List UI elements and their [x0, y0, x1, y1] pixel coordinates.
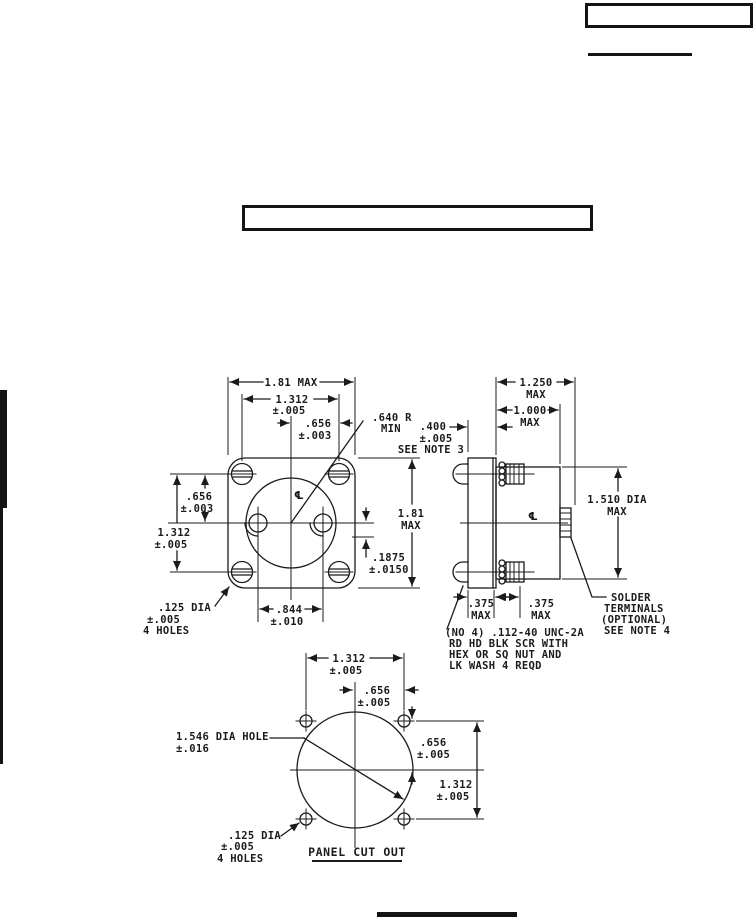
dim-half-spacing-h-tol: ±.003 [298, 430, 331, 442]
mount-hole-dia: .125 DIA [158, 602, 211, 614]
dim-width-max-label: 1.81 MAX [265, 377, 318, 389]
panel-half-spacing-v-tol: ±.005 [417, 749, 450, 761]
dim-half-spacing-h-value: .656 [305, 418, 332, 430]
dim-slot-spacing-tol: ±.010 [270, 616, 303, 628]
dim-body-depth-value: 1.000 [513, 405, 546, 417]
panel-mount-hole-note: .125 DIA ±.005 4 HOLES [217, 823, 299, 865]
panel-dim-hole-spacing-h: 1.312 ±.005 [308, 653, 402, 677]
dim-rear-protrusion-unit: MAX [531, 610, 551, 622]
screw-note-line4: LK WASH 4 REQD [449, 660, 542, 672]
cutout-dia-note: 1.546 DIA HOLE ±.016 [176, 731, 403, 799]
dim-rear-protrusion-value: .375 [528, 598, 555, 610]
panel-cutout-title-text: PANEL CUT OUT [308, 845, 406, 859]
side-view: ℄ 1.250 MAX [398, 377, 670, 672]
solder-note-line4: SEE NOTE 4 [604, 625, 670, 637]
screw-bottom-left [228, 562, 256, 583]
panel-mount-hole-tol: ±.005 [221, 841, 254, 853]
panel-hole-spacing-v-tol: ±.005 [436, 791, 469, 803]
mount-hole-note: .125 DIA ±.005 4 HOLES [143, 587, 229, 637]
dim-body-dia-value: 1.510 DIA [587, 494, 647, 506]
centerline-symbol: ℄ [294, 489, 304, 502]
panel-cutout-title: PANEL CUT OUT [308, 845, 406, 861]
screw-top-left [228, 464, 256, 485]
cutout-dia-tol: ±.016 [176, 743, 209, 755]
dim-half-spacing-v-tol: ±.003 [180, 503, 213, 515]
dim-hole-spacing-v-value: 1.312 [157, 527, 190, 539]
panel-half-spacing-h-tol: ±.005 [357, 697, 390, 709]
dim-hole-spacing-h-tol: ±.005 [272, 405, 305, 417]
panel-mount-hole-count: 4 HOLES [217, 853, 263, 865]
dim-offset-tol: ±.0150 [369, 564, 409, 576]
dim-offset-value: .1875 [372, 552, 405, 564]
panel-half-spacing-v-value: .656 [420, 737, 447, 749]
dim-rear-protrusion: .375 MAX [497, 597, 554, 622]
panel-hole-spacing-h-tol: ±.005 [329, 665, 362, 677]
dim-body-depth-unit: MAX [520, 417, 540, 429]
screw-hardware-note: (NO 4) .112-40 UNC-2A RD HD BLK SCR WITH… [445, 586, 584, 672]
panel-dim-half-spacing-v: .656 ±.005 [412, 707, 450, 784]
dim-hole-spacing-v-tol: ±.005 [154, 539, 187, 551]
dim-body-dia: 1.510 DIA MAX [587, 469, 647, 577]
screw-bottom-right [325, 562, 353, 583]
dim-front-protrusion-value: .375 [468, 598, 495, 610]
solder-terminal [560, 508, 606, 597]
dim-height-max-unit: MAX [401, 520, 421, 532]
dim-front-protrusion: .375 MAX [454, 597, 508, 622]
panel-half-spacing-h-value: .656 [364, 685, 391, 697]
dim-flange-thickness-note: SEE NOTE 3 [398, 444, 464, 456]
dim-half-spacing-v: .656 ±.003 [180, 476, 213, 521]
dim-half-spacing-v-value: .656 [186, 491, 213, 503]
dim-depth-max: 1.250 MAX [498, 377, 573, 401]
dim-hole-spacing-h: 1.312 ±.005 [244, 394, 337, 417]
panel-hole-spacing-v-value: 1.312 [439, 779, 472, 791]
cutout-dia-value: 1.546 DIA HOLE [176, 731, 269, 743]
solder-terminals-note: SOLDER TERMINALS (OPTIONAL) SEE NOTE 4 [601, 592, 670, 637]
technical-drawing: ℄ 1.81 MAX 1.312 ±.005 [0, 0, 756, 924]
dim-front-protrusion-unit: MAX [471, 610, 491, 622]
screw-top-right [325, 464, 353, 485]
dim-body-dia-unit: MAX [607, 506, 627, 518]
panel-cutout-view: 1.312 ±.005 .656 ±.005 1.546 DIA HOLE ±.… [176, 653, 484, 865]
dim-flange-thickness-value: .400 [420, 421, 447, 433]
dim-body-depth: 1.000 MAX [498, 405, 558, 429]
drawing-page: ℄ 1.81 MAX 1.312 ±.005 [0, 0, 756, 924]
dim-depth-max-unit: MAX [526, 389, 546, 401]
panel-hole-spacing-h-value: 1.312 [332, 653, 365, 665]
front-view: ℄ 1.81 MAX 1.312 ±.005 [143, 377, 424, 637]
panel-dim-half-spacing-h: .656 ±.005 [340, 685, 418, 709]
dim-half-spacing-h: .656 ±.003 [278, 418, 352, 442]
dim-slot-spacing-value: .844 [276, 604, 303, 616]
mount-hole-count: 4 HOLES [143, 625, 189, 637]
dim-flange-thickness: .400 ±.005 SEE NOTE 3 [398, 421, 512, 456]
radius-min: MIN [381, 423, 401, 435]
dim-slot-spacing: .844 ±.010 [260, 604, 321, 628]
side-centerline-symbol: ℄ [528, 510, 538, 523]
dim-width-max: 1.81 MAX [230, 377, 353, 389]
dim-depth-max-value: 1.250 [519, 377, 552, 389]
dim-height-max-value: 1.81 [398, 508, 425, 520]
